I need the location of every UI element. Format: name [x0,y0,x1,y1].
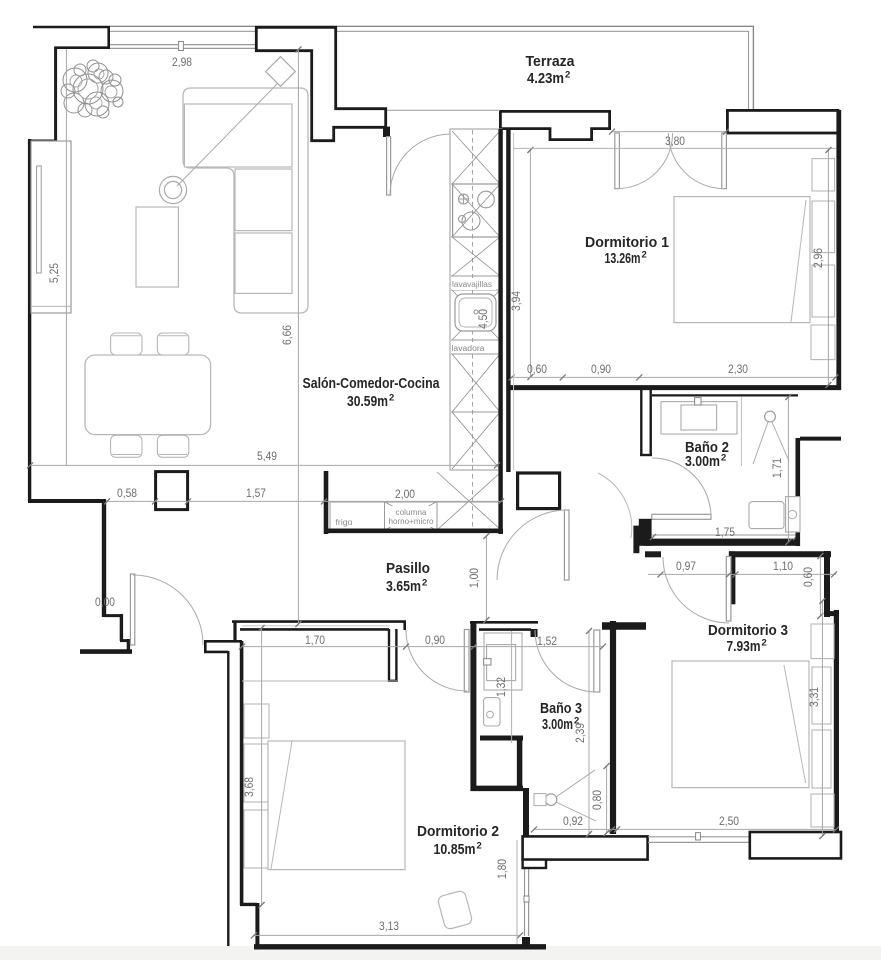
svg-text:6,66: 6,66 [280,325,294,345]
svg-text:horno+micro: horno+micro [389,517,435,526]
svg-text:13.26m: 13.26m [605,251,641,267]
svg-text:7.93m: 7.93m [727,639,761,655]
svg-text:1,52: 1,52 [537,634,557,648]
svg-text:3.00m: 3.00m [542,717,573,733]
svg-text:0,80: 0,80 [590,790,604,810]
svg-text:10.85m: 10.85m [434,842,476,858]
svg-text:0,58: 0,58 [117,486,137,500]
svg-text:2: 2 [477,841,482,852]
svg-text:0,90: 0,90 [425,633,445,647]
svg-text:lavadora: lavadora [452,344,486,353]
svg-text:Dormitorio 3: Dormitorio 3 [708,623,788,639]
svg-text:1,00: 1,00 [467,568,481,588]
svg-text:4.23m: 4.23m [527,71,564,87]
svg-text:5,49: 5,49 [257,449,277,463]
svg-text:0,92: 0,92 [563,814,583,828]
svg-text:3.00m: 3.00m [685,454,720,470]
svg-text:2,50: 2,50 [719,814,739,828]
svg-text:0,00: 0,00 [95,595,115,609]
svg-text:0,97: 0,97 [676,559,696,573]
svg-text:0,60: 0,60 [527,362,547,376]
svg-text:30.59m: 30.59m [347,394,388,410]
svg-text:2: 2 [422,578,427,589]
svg-text:0,90: 0,90 [591,362,611,376]
svg-text:1,75: 1,75 [715,525,735,539]
svg-text:5,25: 5,25 [47,263,61,283]
svg-text:3,13: 3,13 [379,919,399,933]
svg-text:2,00: 2,00 [395,487,415,501]
svg-text:2: 2 [565,70,570,81]
svg-text:3,31: 3,31 [807,687,821,707]
svg-text:Dormitorio 2: Dormitorio 2 [417,824,499,840]
svg-text:Dormitorio 1: Dormitorio 1 [585,235,669,251]
svg-text:1,10: 1,10 [773,559,793,573]
svg-text:2,98: 2,98 [172,55,192,69]
svg-text:frigo: frigo [336,518,354,527]
svg-text:1,70: 1,70 [305,633,325,647]
svg-text:3,94: 3,94 [509,291,523,311]
svg-text:3,80: 3,80 [665,134,685,148]
svg-text:3,68: 3,68 [242,777,256,797]
svg-text:2,30: 2,30 [728,362,748,376]
svg-text:1,80: 1,80 [495,859,509,879]
svg-text:2: 2 [389,393,394,404]
svg-text:Terraza: Terraza [526,54,576,70]
svg-text:0,60: 0,60 [801,567,815,587]
svg-text:Salón-Comedor-Cocina: Salón-Comedor-Cocina [303,376,441,392]
svg-text:1,57: 1,57 [246,486,266,500]
svg-text:columna: columna [396,508,428,517]
svg-text:3.65m: 3.65m [386,579,421,595]
svg-text:1,71: 1,71 [770,458,784,478]
svg-text:2,39: 2,39 [573,723,587,743]
svg-text:lavavajillas: lavavajillas [452,280,492,289]
svg-text:2: 2 [762,638,767,649]
svg-text:1,32: 1,32 [494,677,508,697]
svg-text:2: 2 [721,453,726,464]
svg-text:4,50: 4,50 [476,309,490,329]
svg-text:Pasillo: Pasillo [386,561,430,577]
svg-text:2: 2 [642,250,647,261]
svg-text:2,96: 2,96 [811,248,825,268]
